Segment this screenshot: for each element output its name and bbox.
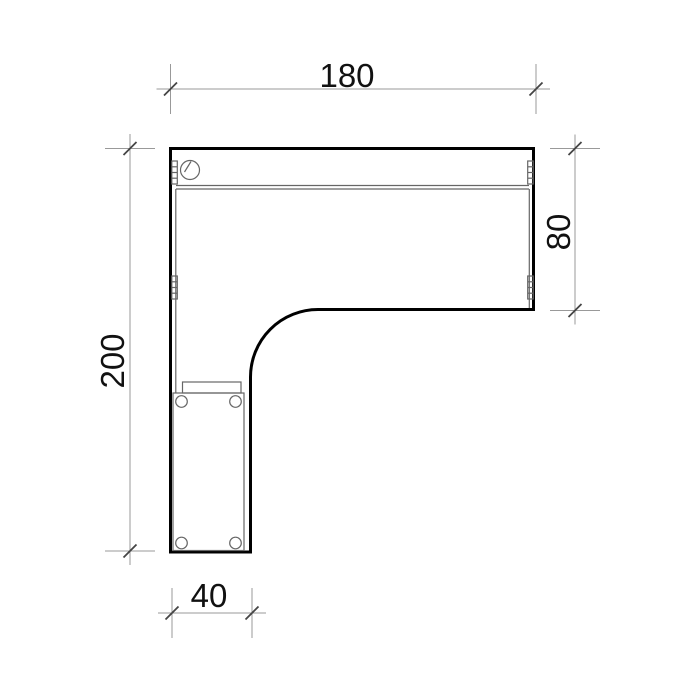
- dimension-label-left: 200: [94, 333, 131, 388]
- desk-plan-drawing: 180 80 200 40: [0, 0, 700, 700]
- drawing-canvas: 180 80 200 40: [0, 0, 700, 700]
- desk-outline: [171, 149, 534, 553]
- dimension-label-bottom: 40: [191, 577, 228, 614]
- dimension-right: 80: [540, 135, 600, 325]
- dimension-label-top: 180: [319, 57, 374, 94]
- dimension-bottom: 40: [158, 577, 266, 638]
- dimension-label-right: 80: [540, 214, 577, 251]
- dimension-top: 180: [157, 57, 551, 114]
- dimension-left: 200: [94, 134, 155, 565]
